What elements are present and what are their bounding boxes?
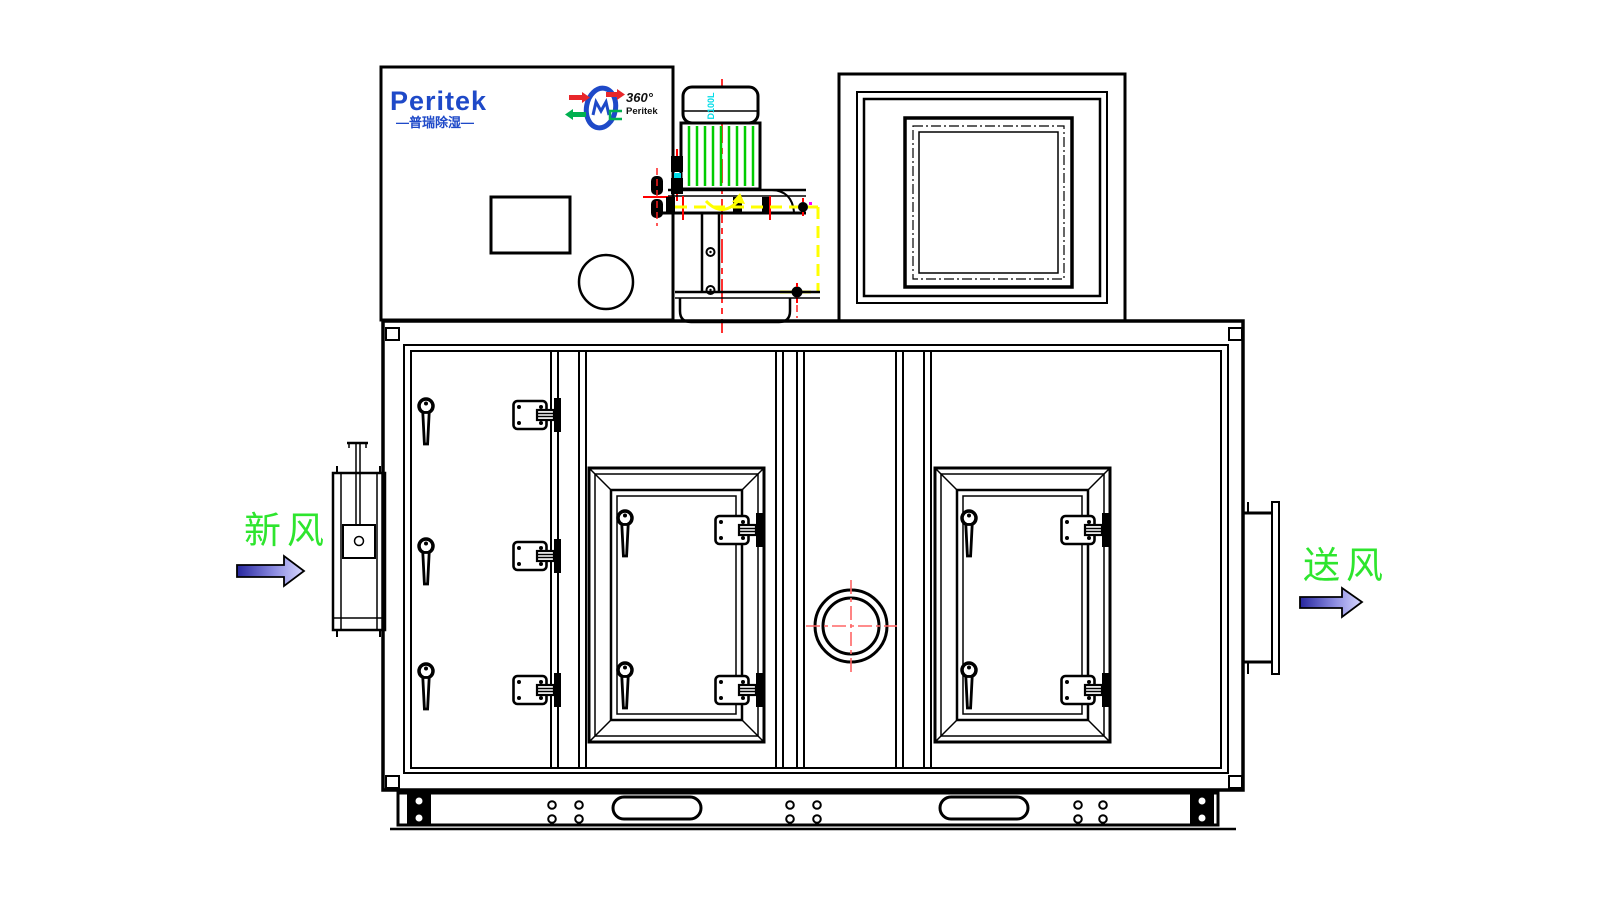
brand-logo: Peritek —普瑞除湿—: [390, 86, 487, 130]
corner-gusset: [386, 776, 399, 788]
motor-pedestal: [675, 213, 820, 322]
corner-gusset: [1229, 328, 1242, 340]
supply-air-arrow-icon: [1300, 588, 1362, 617]
brand-logo-text: Peritek: [390, 86, 487, 116]
motor-cap: [683, 87, 758, 123]
fresh-air-inlet-flange: [333, 443, 385, 637]
door-handle: [618, 511, 632, 556]
rotor-rotation-text: 360°: [626, 90, 654, 105]
cabinet-body: [383, 321, 1243, 790]
inspection-door-left: [589, 468, 764, 742]
brand-logo-subtitle: —普瑞除湿—: [396, 115, 474, 130]
pedestal-foot: [680, 298, 790, 322]
round-knob: [579, 255, 633, 309]
door-latch: [514, 398, 562, 432]
door-latch: [1062, 673, 1110, 707]
door-latch: [716, 673, 764, 707]
display-window: [491, 197, 570, 253]
door-latch: [514, 539, 562, 573]
diamond-mesh-grille: [919, 132, 1058, 273]
control-panel-box: Peritek —普瑞除湿— 360° Peritek: [381, 67, 673, 320]
motor-frame-label: D100L: [706, 92, 716, 120]
door-handle: [419, 399, 433, 444]
door-handle: [962, 511, 976, 556]
fresh-air-annotation: 新风: [237, 510, 330, 586]
rotor-green-arrow-icon: [565, 109, 586, 120]
anchor-bracket-right: [1190, 794, 1214, 824]
supply-air-label: 送风: [1303, 545, 1389, 586]
forklift-slot: [940, 797, 1028, 819]
door-handle: [962, 663, 976, 708]
door-latch: [1062, 513, 1110, 547]
rotor-logo: 360° Peritek: [565, 86, 658, 130]
forklift-slot: [613, 797, 701, 819]
corner-gusset: [386, 328, 399, 340]
grille-frame: [905, 118, 1072, 287]
supply-air-outlet-flange: [1243, 502, 1279, 674]
anchor-bracket-left: [407, 794, 431, 824]
door-latch: [716, 513, 764, 547]
rotor-brand-text: Peritek: [626, 106, 658, 117]
door-handle: [419, 539, 433, 584]
supply-air-annotation: 送风: [1300, 545, 1389, 617]
drawing-canvas: Peritek —普瑞除湿— 360° Peritek: [0, 0, 1613, 897]
sight-glass: [806, 580, 897, 673]
door-handle: [618, 663, 632, 708]
corner-gusset: [1229, 776, 1242, 788]
datum-bolt: [798, 202, 808, 212]
access-panel-left: [419, 398, 561, 709]
door-handle: [419, 664, 433, 709]
filter-grille-box: [839, 74, 1125, 321]
mount-bolt: [666, 197, 675, 213]
door-latch: [514, 673, 562, 707]
base-frame: [390, 793, 1236, 829]
inspection-door-right: [935, 468, 1110, 742]
fresh-air-label: 新风: [244, 510, 330, 551]
motor-cooling-fins: [689, 126, 753, 186]
damper-actuator: [343, 443, 375, 558]
fresh-air-arrow-icon: [237, 556, 304, 586]
drive-motor-assembly: D100L: [643, 79, 820, 333]
